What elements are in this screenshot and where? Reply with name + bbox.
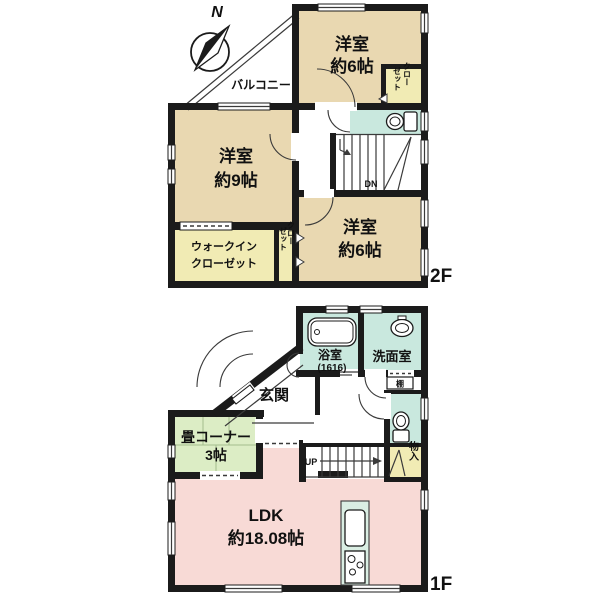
stove-icon	[345, 551, 365, 583]
bedroom6-bottom-size: 約6帖	[338, 240, 381, 260]
storage-floor	[388, 446, 423, 479]
closet-mid-label-col2: ゼット	[279, 226, 288, 251]
wic-label-line2: クローゼット	[191, 256, 257, 270]
bedroom9-size: 約9帖	[214, 170, 257, 190]
kitchen-counter	[341, 501, 369, 585]
compass-icon: N	[191, 4, 229, 71]
staircase-down: DN	[336, 135, 421, 191]
balcony-label: バルコニー	[231, 78, 291, 92]
toilet-icon-1f	[393, 412, 409, 442]
storage-label: 物入	[407, 440, 419, 462]
floor1-label: 1F	[430, 574, 452, 595]
wic-floor	[172, 226, 278, 284]
closet-top-label-col1: クロー	[403, 62, 412, 86]
bath-name: 浴室	[318, 347, 342, 362]
floorplan-canvas: N バルコニー	[0, 0, 600, 600]
washroom-label: 洗面室	[372, 349, 411, 364]
ldk-size: 約18.08帖	[228, 528, 305, 548]
entrance-label: 玄関	[259, 386, 289, 404]
kitchen-sink-icon	[345, 510, 365, 546]
floor2-label: 2F	[430, 266, 452, 287]
bedroom9-floor	[172, 107, 296, 226]
stairs-up-label: UP	[305, 457, 318, 467]
shelf: 棚	[387, 377, 413, 389]
tatami-label-line2: 3帖	[205, 447, 227, 463]
bath-size: (1616)	[318, 363, 347, 374]
bedroom6-top-name: 洋室	[335, 34, 369, 54]
bedroom6-bottom-name: 洋室	[343, 217, 377, 237]
stairs-dn-label: DN	[365, 179, 378, 189]
ldk-name: LDK	[249, 506, 285, 525]
compass-north-label: N	[211, 4, 223, 21]
bedroom6-bottom-floor	[296, 194, 424, 284]
closet-mid-label-col1: クロー	[287, 221, 296, 245]
closet-top-label-col2: ゼット	[393, 66, 402, 91]
bathtub-icon	[308, 318, 356, 346]
shelf-label: 棚	[396, 379, 404, 389]
floorplan-page: N バルコニー	[0, 0, 600, 600]
tatami-label-line1: 畳コーナー	[181, 429, 251, 445]
bedroom6-top-size: 約6帖	[330, 56, 373, 76]
door-arcs-1f	[359, 377, 386, 419]
first-floor-plan: UP 物入 棚	[168, 306, 452, 595]
bedroom9-name: 洋室	[219, 146, 253, 166]
wic-label-line1: ウォークイン	[191, 240, 257, 253]
